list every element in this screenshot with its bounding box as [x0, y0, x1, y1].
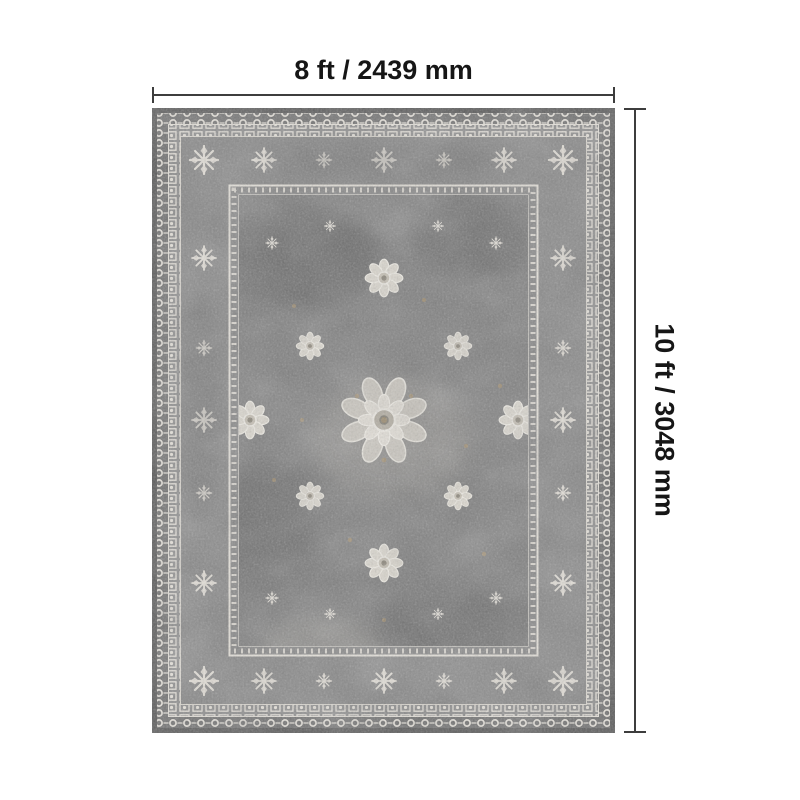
product-dimension-diagram: 8 ft / 2439 mm 10 ft / 3048 mm: [0, 0, 800, 800]
dimension-tick: [152, 87, 154, 103]
dimension-tick: [624, 731, 646, 733]
height-dimension-line: [634, 108, 636, 733]
dimension-tick: [613, 87, 615, 103]
dimension-tick: [624, 108, 646, 110]
width-dimension-line: [152, 94, 615, 96]
width-dimension-label: 8 ft / 2439 mm: [152, 57, 615, 84]
height-dimension-label: 10 ft / 3048 mm: [651, 323, 678, 517]
rug-graphic: [152, 108, 615, 733]
rug-image: [152, 108, 615, 733]
